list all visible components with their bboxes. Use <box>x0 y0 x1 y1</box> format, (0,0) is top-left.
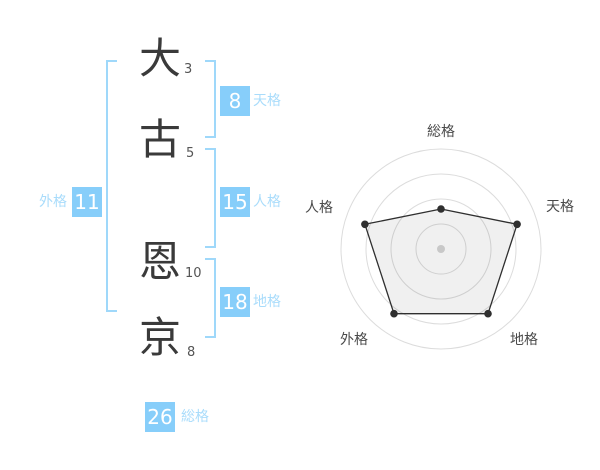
jinkaku-label: 人格 <box>253 187 281 217</box>
gaikaku-label: 外格 <box>39 187 67 217</box>
stroke-count-1: 3 <box>184 63 192 76</box>
stroke-count-4: 8 <box>187 346 195 359</box>
chikaku-label: 地格 <box>253 287 281 317</box>
radar-vertex-dot <box>484 310 492 318</box>
radar-vertex-dot <box>437 205 445 213</box>
tenkaku-score-badge: 8 <box>220 86 250 116</box>
jinkaku-score-badge: 15 <box>220 187 250 217</box>
soukaku-label: 総格 <box>181 402 209 432</box>
name-char-3: 恩 <box>138 241 182 283</box>
radar-vertex-dot <box>361 221 369 229</box>
radar-chart-svg <box>331 139 551 359</box>
name-char-4: 京 <box>138 317 182 359</box>
chikaku-score-badge: 18 <box>220 287 250 317</box>
radar-axis-chikaku: 地格 <box>510 333 538 348</box>
name-char-1: 大 <box>138 38 182 80</box>
tenkaku-label: 天格 <box>253 86 281 116</box>
gaikaku-score-badge: 11 <box>72 187 102 217</box>
radar-axis-jinkaku: 人格 <box>305 201 333 216</box>
radar-center-dot <box>437 245 445 253</box>
tenkaku-bracket <box>205 60 216 138</box>
radar-polygon <box>365 209 517 314</box>
radar-vertex-dot <box>390 310 398 318</box>
chikaku-bracket <box>205 258 216 338</box>
radar-axis-tenkaku: 天格 <box>546 200 574 215</box>
stroke-count-3: 10 <box>185 267 202 280</box>
radar-axis-soukaku: 総格 <box>427 125 455 140</box>
soukaku-score-badge: 26 <box>145 402 175 432</box>
gaikaku-bracket <box>106 60 117 312</box>
radar-axis-gaikaku: 外格 <box>340 333 368 348</box>
name-analysis-screen: 大 古 恩 京 3 5 10 8 8 天格 15 人格 18 地格 外格 11 … <box>0 0 600 470</box>
stroke-count-2: 5 <box>186 147 194 160</box>
jinkaku-bracket <box>205 148 216 248</box>
radar-vertex-dot <box>513 221 521 229</box>
name-char-2: 古 <box>138 119 182 161</box>
